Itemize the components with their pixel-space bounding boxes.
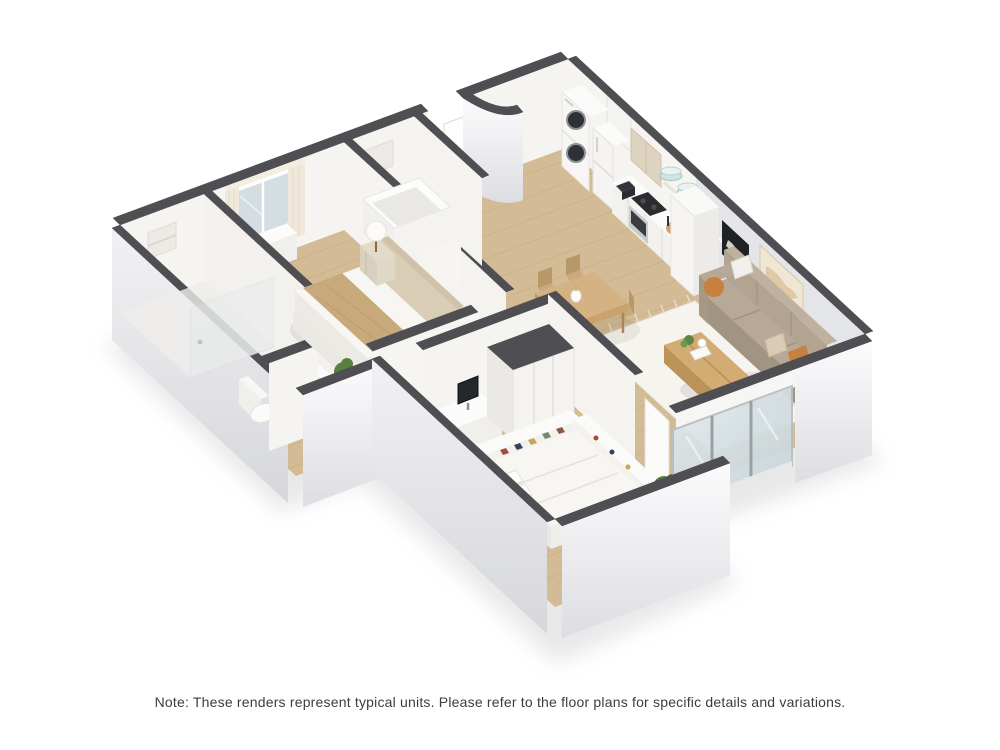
table-vase <box>571 290 581 302</box>
note-caption: Note: These renders represent typical un… <box>0 694 1000 710</box>
floor-plan-render <box>0 0 1000 750</box>
coffee-table-vase <box>698 339 706 347</box>
sofa-pillow-orange <box>704 277 724 297</box>
page: { "caption": { "text": "Note: These rend… <box>0 0 1000 750</box>
washer-door <box>567 111 585 129</box>
dryer-door <box>567 144 585 162</box>
table-lamp <box>366 221 386 241</box>
